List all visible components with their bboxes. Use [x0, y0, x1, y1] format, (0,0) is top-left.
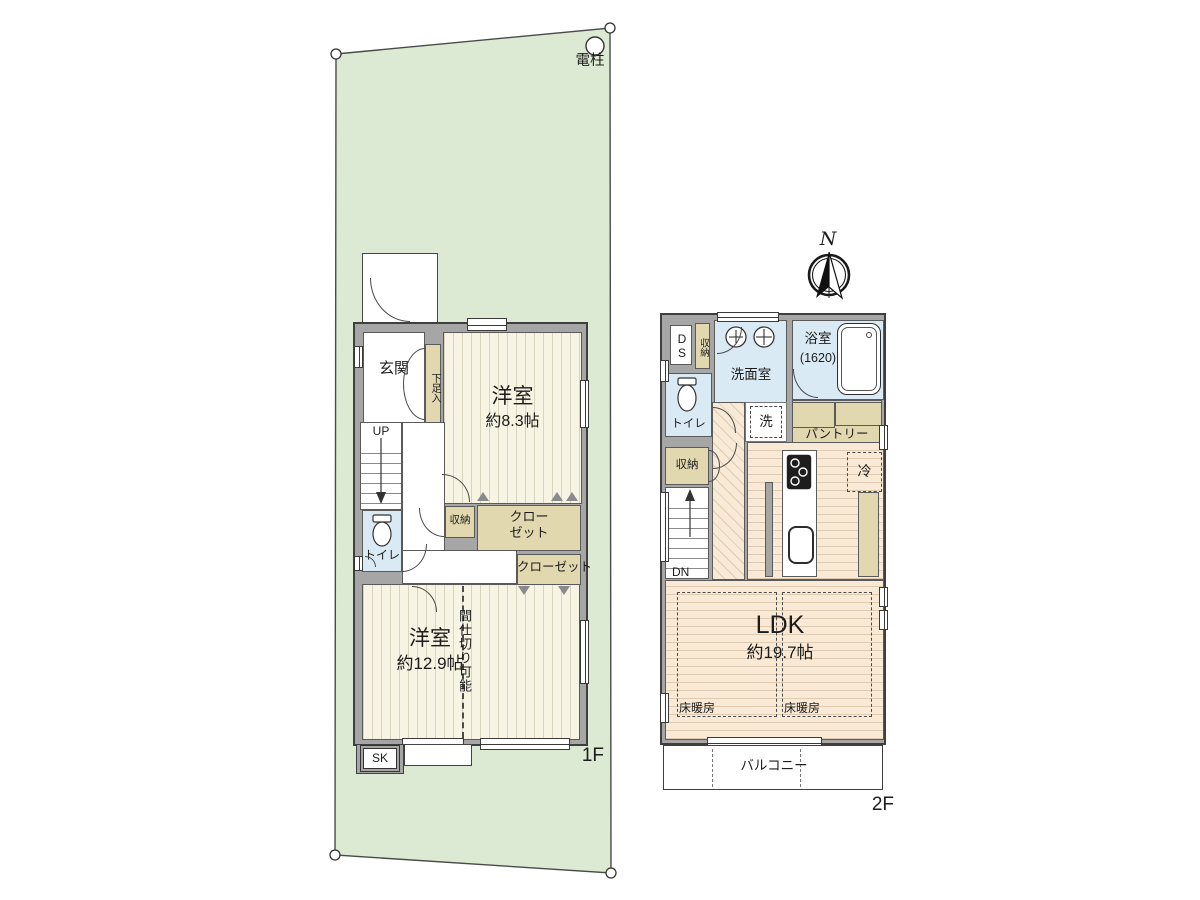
toilet-2f-label: トイレ — [666, 417, 711, 431]
window — [660, 492, 669, 562]
storage-1f-label: 収納 — [445, 514, 475, 527]
sk-label: SK — [363, 751, 397, 766]
window — [879, 610, 888, 630]
floor-heating-left-label: 床暖房 — [679, 701, 731, 716]
stairs-dn-label: DN — [668, 565, 698, 580]
storage-mid-label: 収納 — [665, 458, 709, 472]
bedroom-129-name: 洋室 — [365, 626, 495, 652]
closet-upper-label: クロー ゼット — [477, 509, 581, 541]
window — [580, 380, 589, 428]
fold-mark — [551, 492, 563, 501]
floor2-building: DS 収納 洗面室 浴室 (1620) トイレ 洗 パントリー 収納 DN 冷 … — [660, 313, 886, 745]
bedroom-129-size: 約12.9帖 — [365, 654, 495, 675]
kitchen-wall — [765, 482, 773, 577]
duct-space-label: DS — [673, 329, 689, 363]
utility-pole-label: 電柱 — [566, 53, 614, 71]
boundary-marker — [331, 49, 341, 59]
toilet-icon — [368, 514, 396, 548]
washroom-label: 洗面室 — [716, 367, 786, 383]
bathtub-inner — [841, 327, 877, 391]
stairs-up-arrow — [684, 489, 696, 537]
fold-mark — [477, 492, 489, 501]
floor1-building: 玄関 下足入 洋室 約8.3帖 UP トイレ 収納 クロー ゼット クローゼット… — [353, 322, 588, 746]
washer-label: 洗 — [750, 414, 782, 430]
storage-top-label: 収納 — [696, 328, 709, 366]
boundary-marker — [606, 868, 616, 878]
window — [480, 738, 570, 750]
fold-mark — [518, 586, 530, 595]
floor2-label: 2F — [854, 793, 894, 816]
pantry-cabinet — [835, 402, 882, 426]
bathtub-drain — [866, 332, 872, 338]
terrace-step — [404, 744, 472, 766]
bedroom-83-size: 約8.3帖 — [443, 412, 582, 432]
window — [354, 556, 363, 571]
compass-icon — [806, 248, 852, 302]
stove-icon — [786, 454, 812, 490]
window — [660, 360, 669, 382]
kitchen-cupboard — [858, 492, 879, 577]
fridge-label: 冷 — [847, 463, 882, 480]
kitchen-sink — [788, 526, 814, 564]
pantry-cabinet — [792, 402, 835, 428]
bedroom-83-name: 洋室 — [443, 384, 582, 410]
window — [467, 318, 507, 331]
closet-lower-label: クローゼット — [517, 560, 581, 575]
pantry-label: パントリー — [794, 427, 880, 442]
boundary-marker — [330, 850, 340, 860]
toilet-icon — [673, 377, 701, 413]
window — [580, 620, 589, 684]
boundary-marker — [605, 23, 615, 33]
balcony: バルコニー — [663, 745, 883, 790]
partition-label: 間仕切り可能 — [452, 596, 472, 706]
window — [660, 693, 669, 723]
window — [717, 312, 779, 322]
shoe-cabinet-label: 下足入 — [426, 356, 440, 420]
window — [879, 587, 888, 607]
floor1-label: 1F — [564, 744, 604, 767]
fold-mark — [566, 492, 578, 501]
bathroom-name: 浴室 — [796, 331, 840, 347]
fold-mark — [558, 586, 570, 595]
floor-heating-right-label: 床暖房 — [784, 701, 836, 716]
window — [354, 346, 363, 368]
stairs-up-label: UP — [363, 424, 399, 439]
ldk-size: 約19.7帖 — [710, 643, 850, 664]
bathroom-size: (1620) — [790, 351, 846, 366]
ldk-name: LDK — [710, 610, 850, 641]
balcony-label: バルコニー — [704, 758, 844, 774]
stairs-down-arrow — [375, 438, 387, 504]
window — [879, 425, 888, 450]
